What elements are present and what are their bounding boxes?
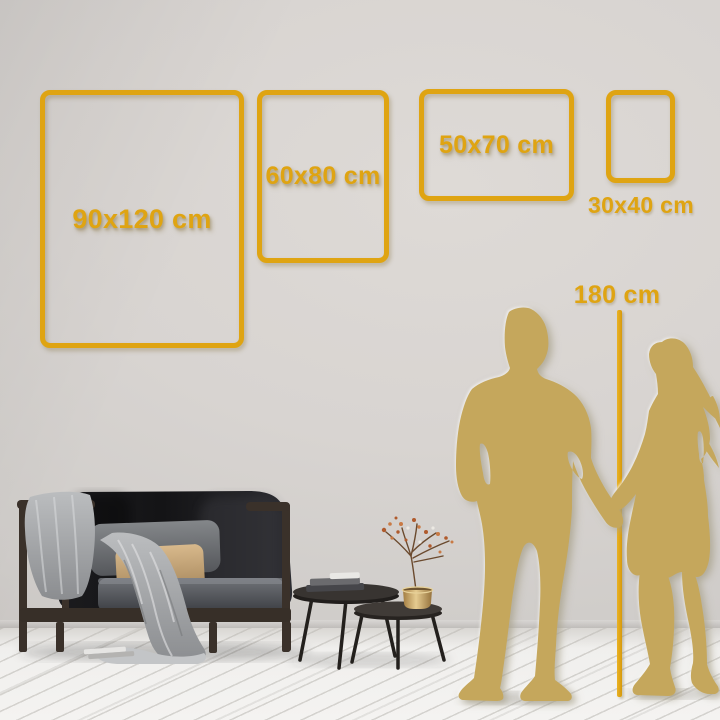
frame-90x120: 90x120 cm [40, 90, 244, 348]
size-label-60x80: 60x80 cm [266, 162, 381, 191]
wall-floor-junction [0, 620, 720, 628]
frame-30x40 [606, 90, 675, 183]
frame-60x80: 60x80 cm [257, 90, 389, 263]
wood-floor [0, 628, 720, 720]
frame-50x70: 50x70 cm [419, 89, 574, 201]
size-label-90x120: 90x120 cm [72, 204, 211, 235]
height-ruler-label: 180 cm [552, 281, 682, 310]
height-ruler-line [617, 310, 622, 697]
size-label-50x70: 50x70 cm [439, 131, 554, 160]
size-guide-scene: 90x120 cm 60x80 cm 50x70 cm 30x40 cm 180… [0, 0, 720, 720]
size-label-30x40: 30x40 cm [574, 192, 708, 219]
